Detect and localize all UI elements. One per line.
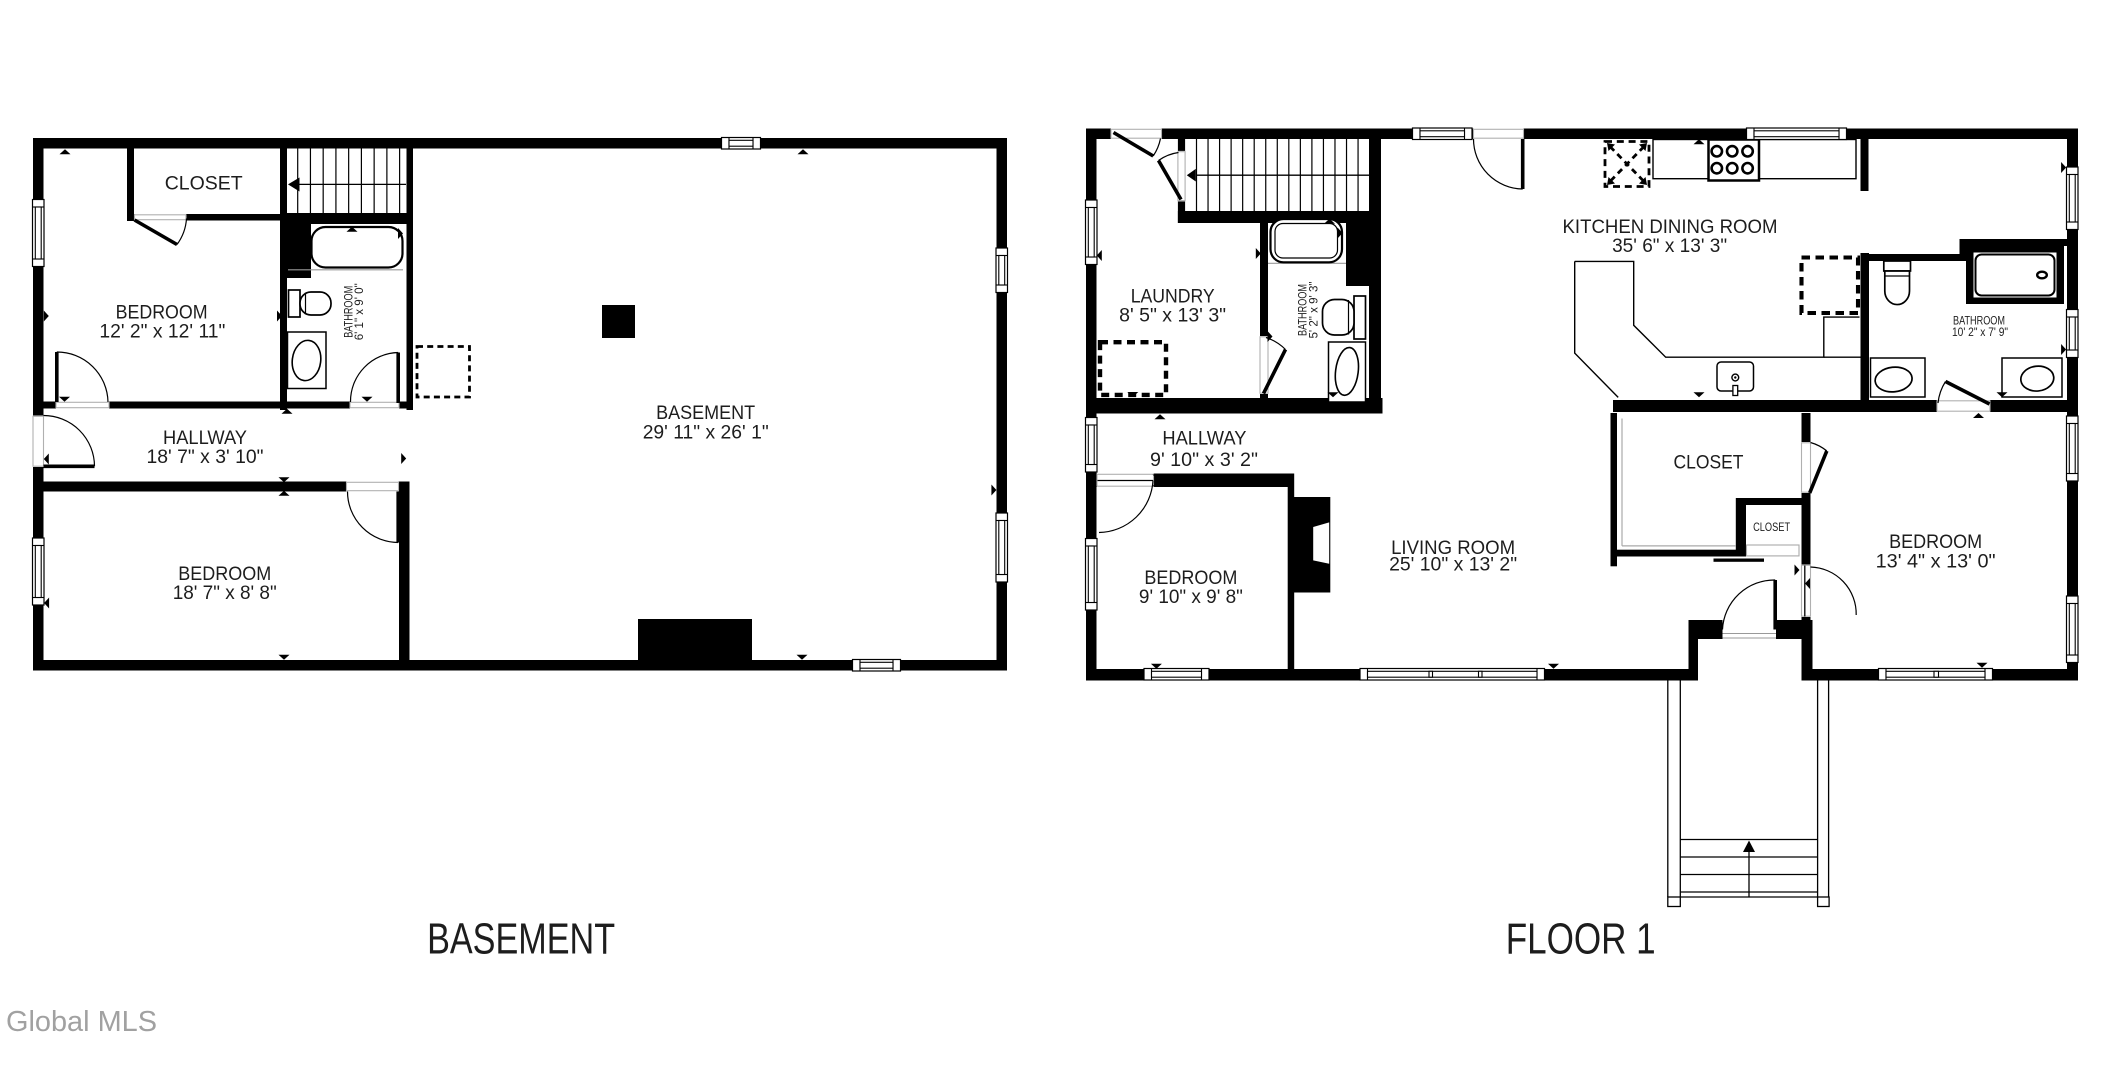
svg-text:HALLWAY: HALLWAY xyxy=(1162,428,1246,450)
svg-text:18' 7" x 3' 10": 18' 7" x 3' 10" xyxy=(147,446,264,468)
svg-text:18' 7" x 8' 8": 18' 7" x 8' 8" xyxy=(173,582,277,604)
svg-text:13' 4" x 13' 0": 13' 4" x 13' 0" xyxy=(1876,551,1996,573)
svg-text:35' 6" x 13' 3": 35' 6" x 13' 3" xyxy=(1612,235,1727,257)
svg-text:CLOSET: CLOSET xyxy=(1674,452,1744,474)
svg-text:6' 1" x 9' 0": 6' 1" x 9' 0" xyxy=(354,283,366,340)
svg-text:29' 11" x 26' 1": 29' 11" x 26' 1" xyxy=(643,422,769,444)
svg-text:BASEMENT: BASEMENT xyxy=(427,915,615,964)
svg-text:9' 10" x 9' 8": 9' 10" x 9' 8" xyxy=(1139,586,1243,608)
svg-text:10' 2" x 7' 9": 10' 2" x 7' 9" xyxy=(1952,325,2008,339)
svg-text:FLOOR 1: FLOOR 1 xyxy=(1506,915,1656,964)
svg-text:8' 5" x 13' 3": 8' 5" x 13' 3" xyxy=(1119,305,1226,327)
svg-text:CLOSET: CLOSET xyxy=(1753,522,1790,534)
svg-text:9' 10" x 3' 2": 9' 10" x 3' 2" xyxy=(1150,449,1258,471)
svg-text:25' 10" x 13' 2": 25' 10" x 13' 2" xyxy=(1389,554,1517,576)
svg-text:CLOSET: CLOSET xyxy=(165,173,243,195)
svg-text:12' 2" x 12' 11": 12' 2" x 12' 11" xyxy=(99,321,225,343)
svg-text:Global MLS: Global MLS xyxy=(6,1006,157,1038)
svg-text:5' 2" x 9' 3": 5' 2" x 9' 3" xyxy=(1309,282,1321,339)
